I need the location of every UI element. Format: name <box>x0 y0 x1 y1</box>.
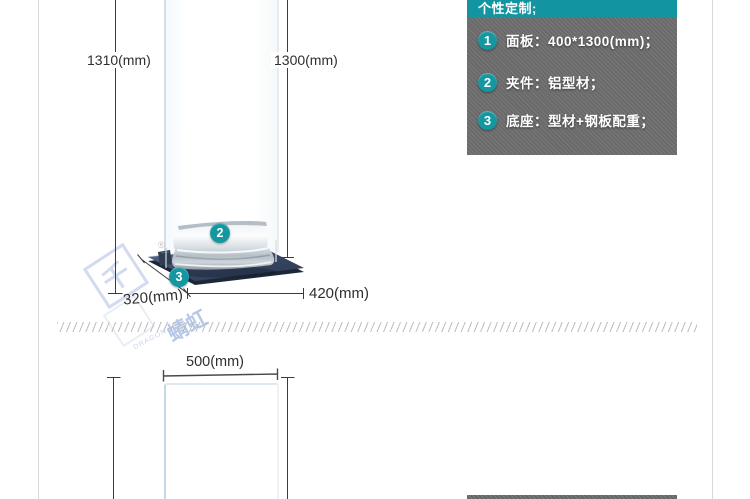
spec-item-text: 底座：型材+钢板配重； <box>506 110 654 130</box>
spec-item-base: 3 底座：型材+钢板配重； <box>467 110 677 130</box>
spec-panel-body: 1 面板：400*1300(mm)； 2 夹件：铝型材； 3 底座：型材+钢板配… <box>467 17 677 155</box>
spec-panel-title: 个性定制; <box>467 0 677 17</box>
spec-item-number: 1 <box>478 31 497 50</box>
spec-item-number: 3 <box>478 111 497 130</box>
product-spec-page: 千 蜻虹 DRAGON ® 1310(mm) 1300(mm) 320(mm) … <box>0 0 750 499</box>
dim-label-total-height: 1310(mm) <box>84 52 154 68</box>
callout-badge-base: 3 <box>169 267 189 287</box>
spec-item-text: 夹件：铝型材； <box>506 72 604 92</box>
section-separator <box>57 322 697 332</box>
callout-badge-clamp: 2 <box>210 223 230 243</box>
dim-label-bottom-panel-width: 500(mm) <box>183 354 247 370</box>
bottom-panel-illustration <box>164 383 279 499</box>
dim-label-panel-height: 1300(mm) <box>271 52 341 68</box>
spec-item-panel: 1 面板：400*1300(mm)； <box>467 30 677 50</box>
spec-item-text: 面板：400*1300(mm)； <box>506 30 659 50</box>
spec-item-number: 2 <box>478 73 497 92</box>
next-spec-panel-edge <box>467 495 677 499</box>
customization-spec-panel: 个性定制; 1 面板：400*1300(mm)； 2 夹件：铝型材； 3 底座：… <box>467 0 677 155</box>
spec-item-clamp: 2 夹件：铝型材； <box>467 72 677 92</box>
dim-label-base-width: 420(mm) <box>306 285 372 302</box>
